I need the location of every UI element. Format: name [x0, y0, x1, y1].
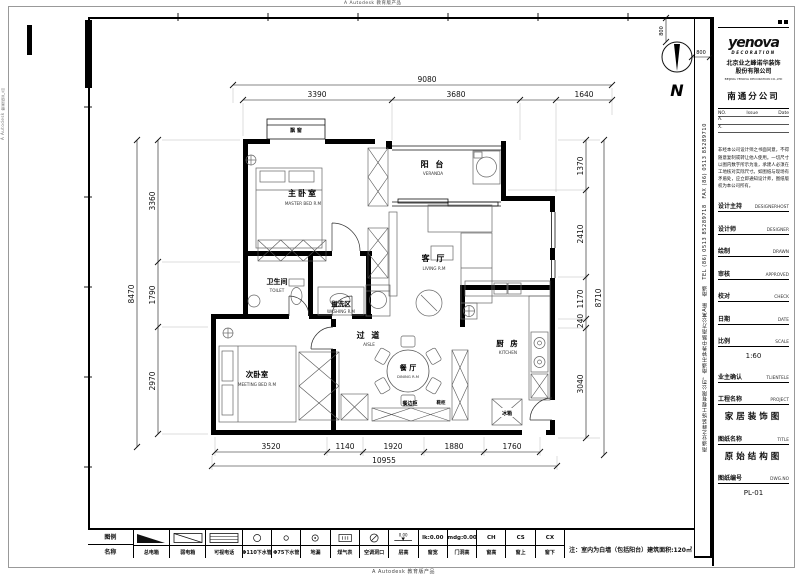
titleblock-fields: 设计主持DESIGNERHOST设计师DESIGNER绘制DRAWN审核APPR… [718, 201, 789, 497]
dim-top-3: 1640 [574, 90, 593, 99]
field-cn: 工程名称 [718, 394, 742, 403]
legend-note: 注：室内为白墙（包括阳台）建筑面积:120㎡ [565, 530, 694, 558]
compass-n: N [670, 81, 684, 100]
legend-symbol-cdot [301, 530, 329, 546]
yenova-logo: yenova DECORATION [718, 36, 789, 55]
legend-header-symbol: 图例 [88, 530, 133, 545]
field-en: DWG.NO [770, 477, 789, 482]
legend-symbol-csm [272, 530, 300, 546]
field-cn: 设计师 [718, 224, 736, 233]
legend-bar: 图例 名称 总电箱弱电箱可视电话Φ110下水管Φ75下水管地漏煤气表空调洞口0.… [88, 528, 694, 558]
field-cn: 日期 [718, 314, 730, 323]
dim-bottom-1: 3520 [261, 442, 280, 451]
field-1: 设计师DESIGNER [718, 224, 789, 235]
field-cn: 图纸编号 [718, 473, 742, 482]
field-cn: 审核 [718, 269, 730, 278]
legend-label: 地漏 [301, 546, 329, 558]
legend-item-3: Φ110下水管 [243, 530, 272, 558]
dim-right-overall: 8710 [594, 288, 603, 307]
field-value-6: 1:60 [718, 352, 789, 360]
legend-item-0: 总电箱 [134, 530, 170, 558]
label-toilet: 卫生间 [267, 277, 288, 286]
dim-top-2: 3680 [446, 90, 465, 99]
legend-item-13: CX窗下 [536, 530, 564, 558]
rev-col-no: NO. [718, 111, 726, 116]
dim-bottom-2: 1140 [335, 442, 354, 451]
rev-row-a: A. [718, 117, 789, 125]
dim-left-3: 2970 [148, 371, 157, 390]
dim-left-overall: 8470 [127, 284, 136, 303]
dim-right-3: 1170 [576, 289, 585, 308]
legend-symbol-text: CH [477, 530, 505, 546]
legend-symbol-ck [360, 530, 388, 546]
legend-label: 空调洞口 [360, 546, 388, 558]
dim-bottom-overall: 10955 [372, 456, 396, 465]
svg-text:0.00: 0.00 [399, 532, 408, 537]
field-en: DESIGNER [767, 228, 789, 233]
dim-left-2: 1790 [148, 285, 157, 304]
field-en: TITLE [777, 438, 789, 443]
legend-item-10: mdg:0.00门洞高 [448, 530, 477, 558]
label-aisle-en: AISLE [363, 342, 375, 347]
floor-plan-svg: 9080 3390 3680 1640 8470 3360 1790 2970 … [0, 0, 800, 575]
legend-symbol-meter [331, 530, 359, 546]
label-dining: 餐 厅 [399, 363, 416, 372]
label-kitchen-en: KITCHEN [499, 350, 517, 355]
legend-label: Φ75下水管 [272, 546, 300, 558]
label-master: 主卧室 [288, 188, 318, 198]
dim-top-overall: 9080 [417, 75, 436, 84]
field-10: 图纸编号DWG.NO [718, 473, 789, 484]
field-value-10: PL-01 [718, 489, 789, 497]
dim-bottom-4: 1880 [444, 442, 463, 451]
label-toilet-en: TOILET [269, 288, 285, 293]
legend-label: 可视电话 [206, 546, 241, 558]
legend-symbol-text: lk:0.00 [419, 530, 447, 546]
revision-table: NO. Issue Date A. X. [718, 111, 789, 133]
label-living-en: LIVING R.M [422, 266, 445, 271]
legend-label: 弱电箱 [170, 546, 205, 558]
field-en: DATE [778, 318, 789, 323]
legend-label: 窗高 [477, 546, 505, 558]
field-cn: 图纸名称 [718, 434, 742, 443]
company-name-en: BEIJING YENOVA DECORATION CO.,LTD [718, 78, 789, 82]
drawing-sheet: A Autodesk 教育版产品 A Autodesk 教育版产品 A Auto… [0, 0, 800, 575]
field-en: APPROVED [766, 273, 789, 278]
legend-label: Φ110下水管 [243, 546, 271, 558]
registration-marks [718, 17, 789, 28]
dim-bottom-5: 1760 [502, 442, 521, 451]
label-fridge: 冰箱 [502, 410, 512, 417]
dim-top-1: 3390 [307, 90, 326, 99]
label-veranda-en: VERANDA [423, 171, 443, 176]
branch-name: 南通分公司 [718, 90, 789, 109]
rev-row-x: X. [718, 125, 789, 133]
legend-symbol-text: CX [536, 530, 564, 546]
legend-item-11: CH窗高 [477, 530, 506, 558]
field-en: DRAWN [773, 250, 789, 255]
field-7: 业主确认TLIENTELE [718, 372, 789, 383]
field-5: 日期DATE [718, 314, 789, 325]
label-sideboard: 餐边柜 [401, 400, 417, 407]
legend-item-9: lk:0.00窗宽 [419, 530, 448, 558]
label-second-en: MEETING BED R.M [238, 382, 277, 387]
label-veranda: 阳 台 [421, 159, 446, 169]
disclaimer-text: 非经本公司设计师之书面同意，不得随意复制或转让他人使用。一切尺寸以图内数字所示为… [718, 147, 789, 189]
field-cn: 设计主持 [718, 201, 742, 210]
compass-dim-v: 800 [659, 26, 665, 36]
label-living: 客 厅 [421, 253, 447, 263]
dim-left-1: 3360 [148, 191, 157, 210]
label-dining-en: DINING R.M [397, 374, 419, 379]
dim-bottom-3: 1920 [383, 442, 402, 451]
label-shoe-cabinet: 鞋柜 [437, 399, 446, 406]
dim-right-4: 240 [576, 314, 585, 329]
field-en: TLIENTELE [766, 376, 789, 381]
title-block: yenova DECORATION 北京业之峰诺华装饰 股份有限公司 BEIJI… [712, 17, 793, 566]
field-en: CHECK [774, 295, 789, 300]
legend-label: 总电箱 [134, 546, 169, 558]
room-labels: 主卧室 MASTER BED R.M 飘 窗 阳 台 VERANDA 客 厅 L… [238, 127, 520, 417]
legend-item-4: Φ75下水管 [272, 530, 301, 558]
field-4: 校对CHECK [718, 291, 789, 302]
field-8: 工程名称PROJECT [718, 394, 789, 405]
legend-header: 图例 名称 [88, 530, 134, 558]
field-0: 设计主持DESIGNERHOST [718, 201, 789, 212]
field-value-9: 原始结构图 [718, 450, 789, 462]
legend-label: 窗上 [506, 546, 534, 558]
legend-label: 窗下 [536, 546, 564, 558]
label-aisle: 过 道 [357, 330, 382, 340]
legend-item-7: 空调洞口 [360, 530, 389, 558]
legend-symbol-cmd [243, 530, 271, 546]
field-value-8: 家居装饰图 [718, 410, 789, 422]
field-cn: 绘制 [718, 246, 730, 255]
logo-text: yenova [718, 36, 789, 50]
company-side-strip: 南通业之峰装饰工程有限公司，南通市钟秀中路南方公寓A座 南通 TEL (86) … [694, 17, 713, 558]
legend-label: 煤气表 [331, 546, 359, 558]
rev-col-date: Date [778, 111, 789, 116]
legend-item-5: 地漏 [301, 530, 330, 558]
field-cn: 比例 [718, 336, 730, 345]
dimension-texts: 9080 3390 3680 1640 8470 3360 1790 2970 … [127, 75, 603, 465]
legend-item-12: CS窗上 [506, 530, 535, 558]
legend-item-8: 0.00层高 [389, 530, 418, 558]
field-3: 审核APPROVED [718, 269, 789, 280]
field-en: SCALE [775, 340, 789, 345]
label-kitchen: 厨 房 [496, 338, 520, 348]
field-cn: 校对 [718, 291, 730, 300]
label-washing-en: WASHING R.M [327, 309, 355, 314]
binding-mark [85, 20, 92, 88]
legend-items: 总电箱弱电箱可视电话Φ110下水管Φ75下水管地漏煤气表空调洞口0.00层高lk… [134, 530, 565, 558]
legend-label: 窗宽 [419, 546, 447, 558]
legend-symbol-lines [206, 530, 241, 546]
legend-symbol-level: 0.00 [389, 530, 417, 546]
dim-right-1: 1370 [576, 156, 585, 175]
label-bay-window: 飘 窗 [289, 127, 302, 134]
legend-symbol-text: CS [506, 530, 534, 546]
field-6: 比例SCALE [718, 336, 789, 347]
compass-needle [674, 44, 680, 71]
field-2: 绘制DRAWN [718, 246, 789, 257]
label-second: 次卧室 [246, 369, 269, 379]
legend-item-2: 可视电话 [206, 530, 242, 558]
legend-label: 层高 [389, 546, 417, 558]
legend-symbol-text: mdg:0.00 [448, 530, 476, 546]
rev-col-issue: Issue [746, 111, 758, 116]
company-side-text: 南通业之峰装饰工程有限公司，南通市钟秀中路南方公寓A座 南通 TEL (86) … [701, 123, 708, 452]
field-en: DESIGNERHOST [755, 205, 789, 210]
dim-right-5: 3040 [576, 374, 585, 393]
legend-header-name: 名称 [88, 545, 133, 559]
label-master-en: MASTER BED R.M [285, 201, 322, 206]
field-en: PROJECT [770, 398, 789, 403]
legend-label: 门洞高 [448, 546, 476, 558]
legend-item-6: 煤气表 [331, 530, 360, 558]
dim-right-2: 2410 [576, 224, 585, 243]
field-cn: 业主确认 [718, 372, 742, 381]
label-washing: 盥洗区 [331, 299, 351, 308]
field-9: 图纸名称TITLE [718, 434, 789, 445]
legend-item-1: 弱电箱 [170, 530, 206, 558]
company-name-cn: 北京业之峰诺华装饰 股份有限公司 [718, 60, 789, 76]
legend-symbol-diag [170, 530, 205, 546]
legend-symbol-tri [134, 530, 169, 546]
